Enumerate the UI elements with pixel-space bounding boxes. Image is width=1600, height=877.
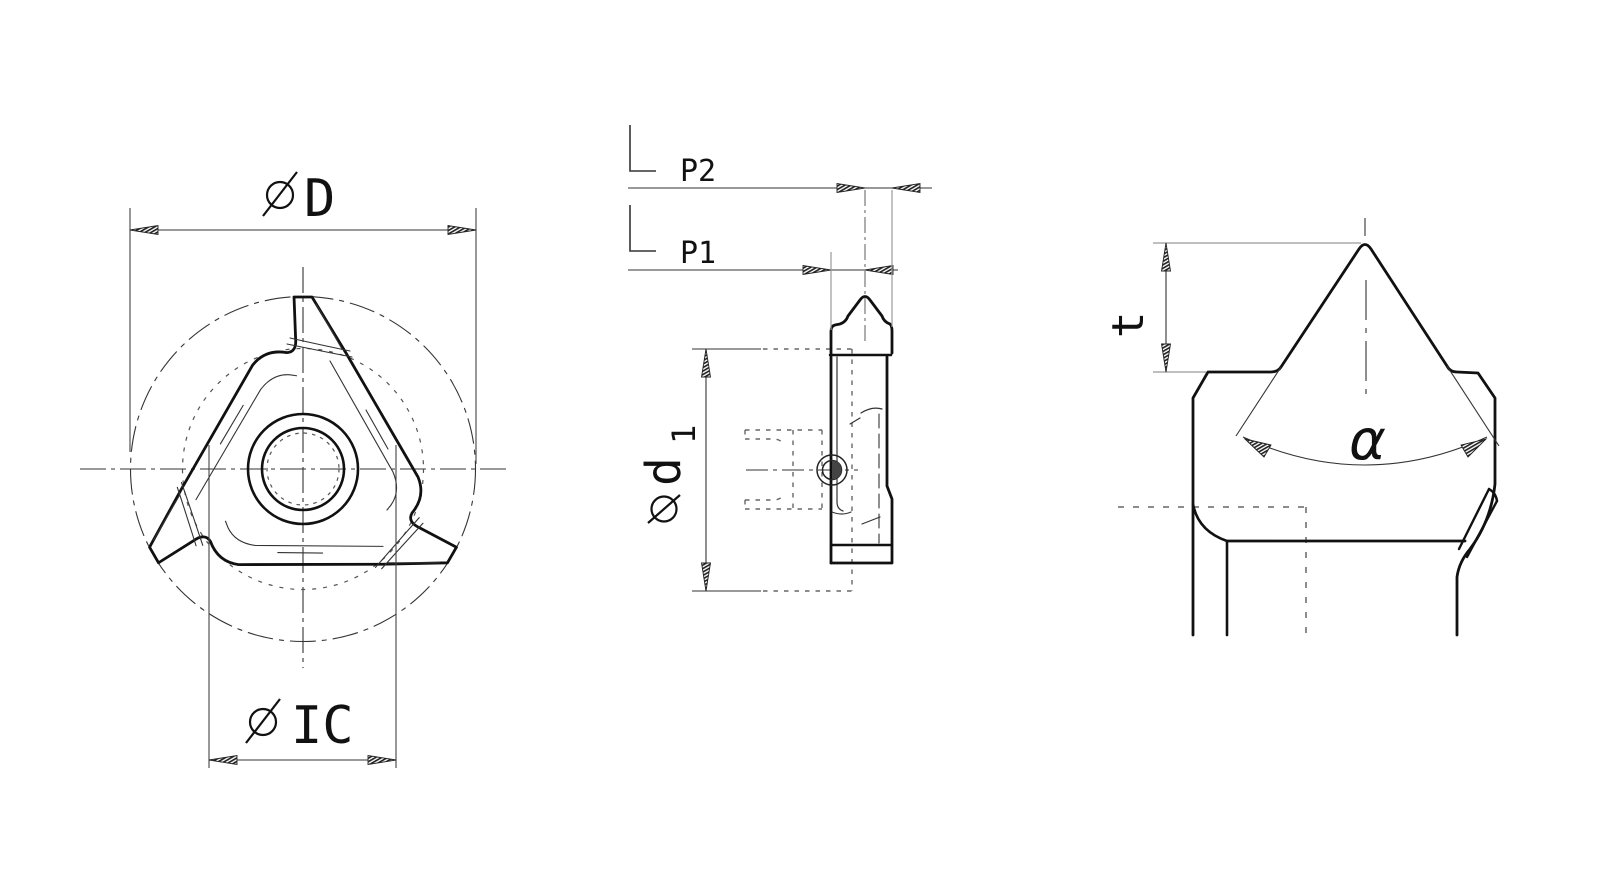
drawing-canvas: D IC (0, 0, 1600, 877)
hole-diameter-dimension: d 1 (636, 349, 761, 591)
reference-corner-symbol (630, 125, 656, 171)
arrowhead-icon (702, 349, 711, 377)
pitch-p1-dimension: P1 (628, 205, 898, 275)
front-view: D IC (78, 169, 510, 768)
diameter-symbol (246, 699, 280, 743)
reference-corner-symbol (630, 205, 656, 251)
pitch-p1-label: P1 (680, 236, 716, 271)
arrowhead-icon (209, 756, 237, 765)
hole-diameter-subscript: 1 (665, 425, 703, 444)
insert-profile-outline (830, 297, 892, 564)
corner-chamfer (1467, 501, 1497, 557)
arrowhead-icon (130, 226, 158, 235)
arrowhead-icon (803, 266, 831, 275)
diameter-symbol (648, 495, 680, 523)
diameter-symbol (263, 172, 297, 216)
arrowhead-icon (1162, 344, 1171, 372)
tooth-depth-dimension: t (1103, 243, 1361, 372)
arrowhead-icon (837, 184, 865, 193)
tooth-depth-label: t (1103, 312, 1154, 339)
pitch-p2-dimension: P2 (628, 125, 932, 193)
technical-drawing: D IC (0, 0, 1600, 877)
arrowhead-icon (865, 266, 893, 275)
arrowhead-icon (1245, 439, 1271, 457)
tip-outline (1193, 245, 1497, 636)
tip-detail-view: α t (1103, 218, 1499, 635)
arrowhead-icon (892, 184, 920, 193)
rotated-label-group: t (1103, 312, 1154, 339)
pitch-p2-label: P2 (680, 154, 716, 189)
arrowhead-icon (1461, 439, 1486, 457)
corner-chamfer (1459, 489, 1489, 549)
arrowhead-icon (368, 756, 396, 765)
flank-extension-line (1447, 366, 1499, 446)
flank-angle-label: α (1349, 408, 1386, 473)
arrowhead-icon (1162, 243, 1171, 271)
inscribed-circle-label: IC (291, 696, 354, 756)
side-view: d 1 P2 P1 (628, 125, 932, 591)
hidden-seat-lines (1118, 507, 1306, 634)
outer-diameter-label: D (304, 169, 335, 229)
arrowhead-icon (702, 563, 711, 591)
arrowhead-icon (448, 226, 476, 235)
flank-angle-dimension: α (1236, 366, 1499, 473)
rotated-label-group: d 1 (636, 425, 703, 523)
insert-outline (78, 297, 457, 688)
flank-extension-line (1236, 367, 1281, 436)
insert-profile-details (832, 357, 882, 543)
hole-diameter-label: d (636, 457, 692, 486)
